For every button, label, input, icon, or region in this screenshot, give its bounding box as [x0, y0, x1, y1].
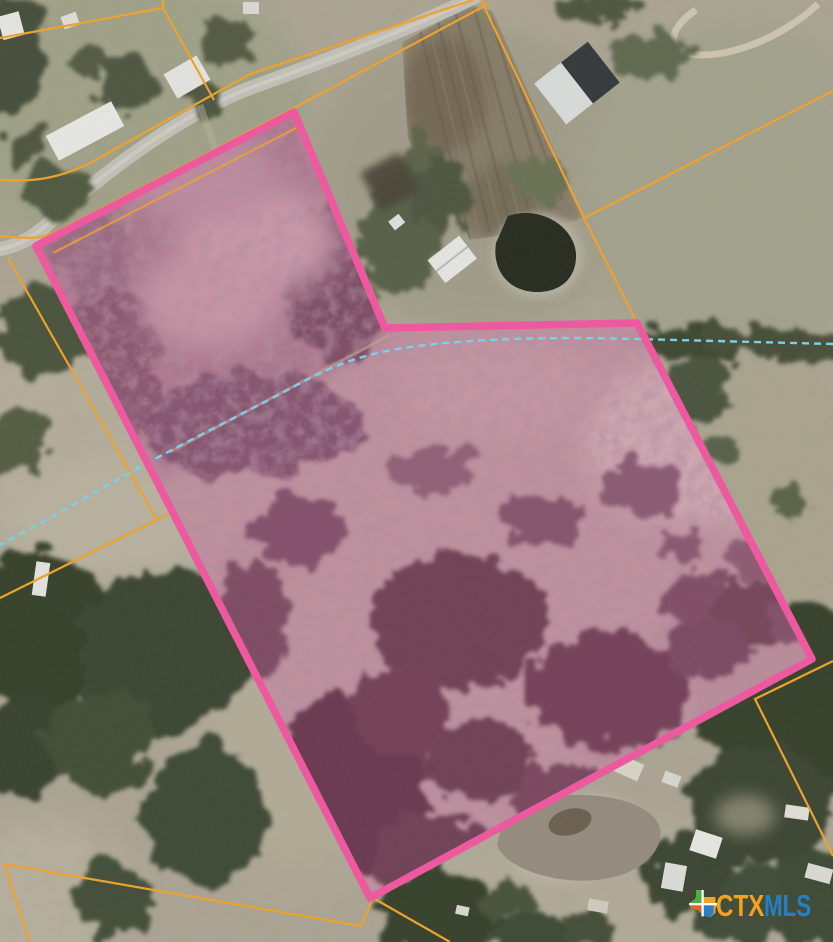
svg-text:CTX: CTX — [716, 888, 765, 923]
svg-text:MLS: MLS — [764, 888, 811, 922]
